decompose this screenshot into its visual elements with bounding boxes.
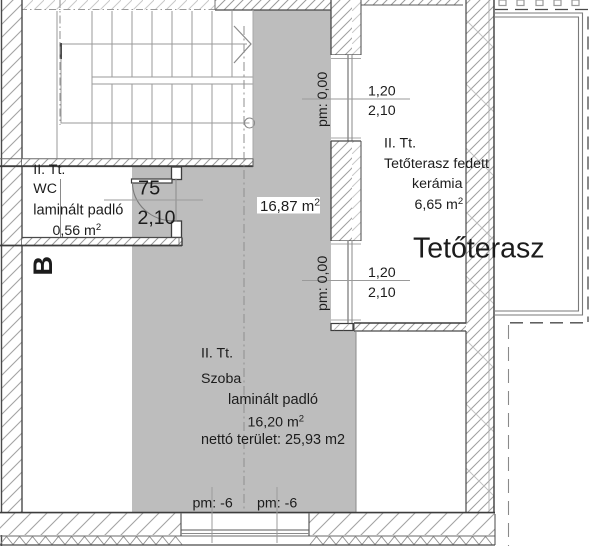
svg-text:pm: -6: pm: -6 <box>193 496 233 512</box>
svg-text:II. Tt.: II. Tt. <box>201 346 233 362</box>
svg-text:pm: 0,00: pm: 0,00 <box>315 256 331 311</box>
svg-text:Tetőterasz fedett: Tetőterasz fedett <box>384 156 489 172</box>
svg-text:2,10: 2,10 <box>138 207 176 229</box>
svg-text:WC: WC <box>33 181 57 197</box>
svg-text:1,20: 1,20 <box>368 265 396 281</box>
svg-text:6,65 m2: 6,65 m2 <box>415 196 464 213</box>
svg-text:Tetőterasz: Tetőterasz <box>413 233 544 265</box>
svg-text:16,87 m2: 16,87 m2 <box>260 197 320 216</box>
svg-text:0,56 m2: 0,56 m2 <box>53 222 102 239</box>
svg-text:2,10: 2,10 <box>368 103 396 119</box>
svg-text:16,20 m2: 16,20 m2 <box>248 414 305 431</box>
svg-text:laminált padló: laminált padló <box>228 392 318 408</box>
svg-text:pm: -6: pm: -6 <box>257 496 297 512</box>
svg-text:75: 75 <box>138 178 160 200</box>
svg-text:II. Tt.: II. Tt. <box>33 162 65 178</box>
svg-text:B: B <box>28 256 58 276</box>
svg-text:pm: 0,00: pm: 0,00 <box>315 72 331 127</box>
svg-text:nettó terület: 25,93 m2: nettó terület: 25,93 m2 <box>201 432 345 448</box>
svg-text:Szoba: Szoba <box>201 371 241 387</box>
svg-text:II. Tt.: II. Tt. <box>384 136 416 152</box>
svg-text:1,20: 1,20 <box>368 84 396 100</box>
svg-text:laminált padló: laminált padló <box>33 202 123 218</box>
svg-text:kerámia: kerámia <box>412 176 463 192</box>
svg-text:2,10: 2,10 <box>368 285 396 301</box>
